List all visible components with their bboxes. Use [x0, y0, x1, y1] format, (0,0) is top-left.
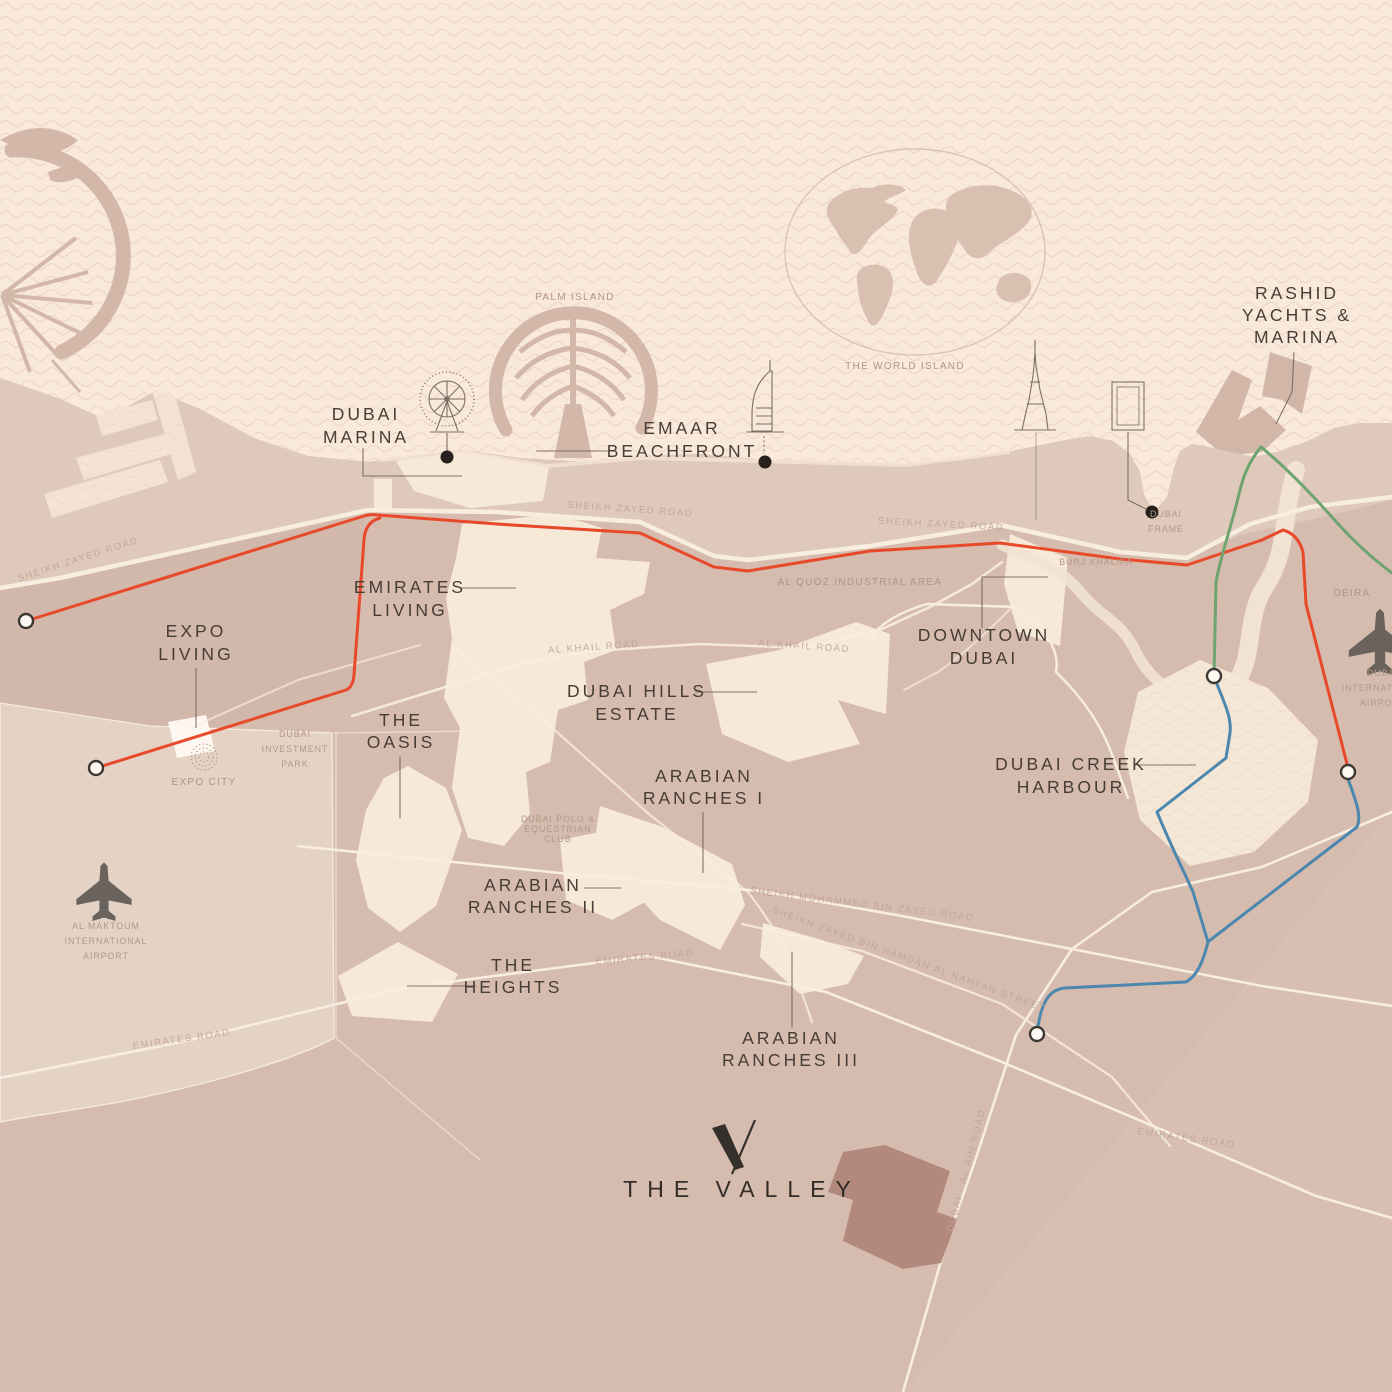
svg-text:DUBAI HILLS: DUBAI HILLS: [567, 681, 707, 701]
svg-text:PARK: PARK: [281, 759, 308, 769]
route-node-creek: [1207, 669, 1221, 683]
svg-text:DUBAI: DUBAI: [1150, 509, 1182, 519]
svg-text:INTERNATIONAL: INTERNATIONAL: [65, 936, 148, 946]
map-canvas: DUBAIMARINA EMAARBEACHFRONT RASHIDYACHTS…: [0, 0, 1392, 1392]
svg-text:DUBAI POLO &: DUBAI POLO &: [521, 814, 595, 824]
svg-text:DUBAI: DUBAI: [332, 404, 400, 424]
svg-text:CLUB: CLUB: [544, 834, 571, 844]
valley-title: THE VALLEY: [623, 1176, 861, 1202]
svg-text:DUBAI: DUBAI: [279, 729, 311, 739]
svg-text:HEIGHTS: HEIGHTS: [464, 977, 563, 997]
svg-text:AIRPORT: AIRPORT: [1360, 698, 1392, 708]
label-rashid-yachts-marina: RASHIDYACHTS &MARINA: [1242, 283, 1352, 347]
svg-text:MARINA: MARINA: [323, 427, 409, 447]
svg-text:LIVING: LIVING: [158, 644, 233, 664]
svg-text:INVESTMENT: INVESTMENT: [262, 744, 329, 754]
svg-text:EXPO: EXPO: [166, 621, 227, 641]
route-node-west: [19, 614, 33, 628]
dubai-location-map: DUBAIMARINA EMAARBEACHFRONT RASHIDYACHTS…: [0, 0, 1392, 1392]
svg-text:RANCHES I: RANCHES I: [643, 788, 765, 808]
label-deira: DEIRA: [1333, 588, 1370, 599]
label-al-quoz: AL QUOZ INDUSTRIAL AREA: [778, 577, 943, 588]
svg-text:MARINA: MARINA: [1254, 327, 1340, 347]
label-world-island: THE WORLD ISLAND: [845, 361, 965, 372]
svg-text:RANCHES II: RANCHES II: [468, 897, 598, 917]
svg-text:YACHTS &: YACHTS &: [1242, 305, 1352, 325]
svg-text:RASHID: RASHID: [1255, 283, 1339, 303]
svg-text:DOWNTOWN: DOWNTOWN: [918, 625, 1051, 645]
svg-text:AIRPORT: AIRPORT: [83, 951, 129, 961]
svg-text:THE: THE: [379, 710, 423, 730]
route-node-east: [1341, 765, 1355, 779]
svg-text:FRAME: FRAME: [1148, 524, 1184, 534]
svg-text:DUBAI: DUBAI: [1367, 668, 1392, 678]
svg-text:ESTATE: ESTATE: [595, 704, 678, 724]
svg-text:ARABIAN: ARABIAN: [484, 875, 582, 895]
route-node-expo: [89, 761, 103, 775]
svg-text:RANCHES III: RANCHES III: [722, 1050, 860, 1070]
marker-dubai-marina: [441, 451, 454, 464]
svg-text:HARBOUR: HARBOUR: [1017, 777, 1126, 797]
parcel-marina-pier: [374, 479, 392, 512]
label-palm-island: PALM ISLAND: [535, 292, 615, 303]
svg-text:EQUESTRIAN: EQUESTRIAN: [524, 824, 591, 834]
svg-text:AL MAKTOUM: AL MAKTOUM: [72, 921, 140, 931]
svg-text:EMIRATES: EMIRATES: [354, 577, 466, 597]
svg-text:EMAAR: EMAAR: [643, 418, 720, 438]
svg-text:INTERNATIONAL: INTERNATIONAL: [1342, 683, 1392, 693]
svg-text:ARABIAN: ARABIAN: [742, 1028, 840, 1048]
svg-text:ARABIAN: ARABIAN: [655, 766, 753, 786]
svg-text:DUBAI CREEK: DUBAI CREEK: [995, 754, 1147, 774]
label-burj-khalifa: BURJ KHALIFA: [1059, 557, 1133, 567]
svg-text:OASIS: OASIS: [367, 732, 436, 752]
label-expo-city: EXPO CITY: [171, 777, 236, 788]
marker-emaar-beachfront: [759, 456, 772, 469]
route-node-south: [1030, 1027, 1044, 1041]
svg-text:LIVING: LIVING: [372, 600, 447, 620]
svg-text:BEACHFRONT: BEACHFRONT: [607, 441, 758, 461]
svg-text:THE: THE: [491, 955, 535, 975]
svg-text:DUBAI: DUBAI: [950, 648, 1018, 668]
